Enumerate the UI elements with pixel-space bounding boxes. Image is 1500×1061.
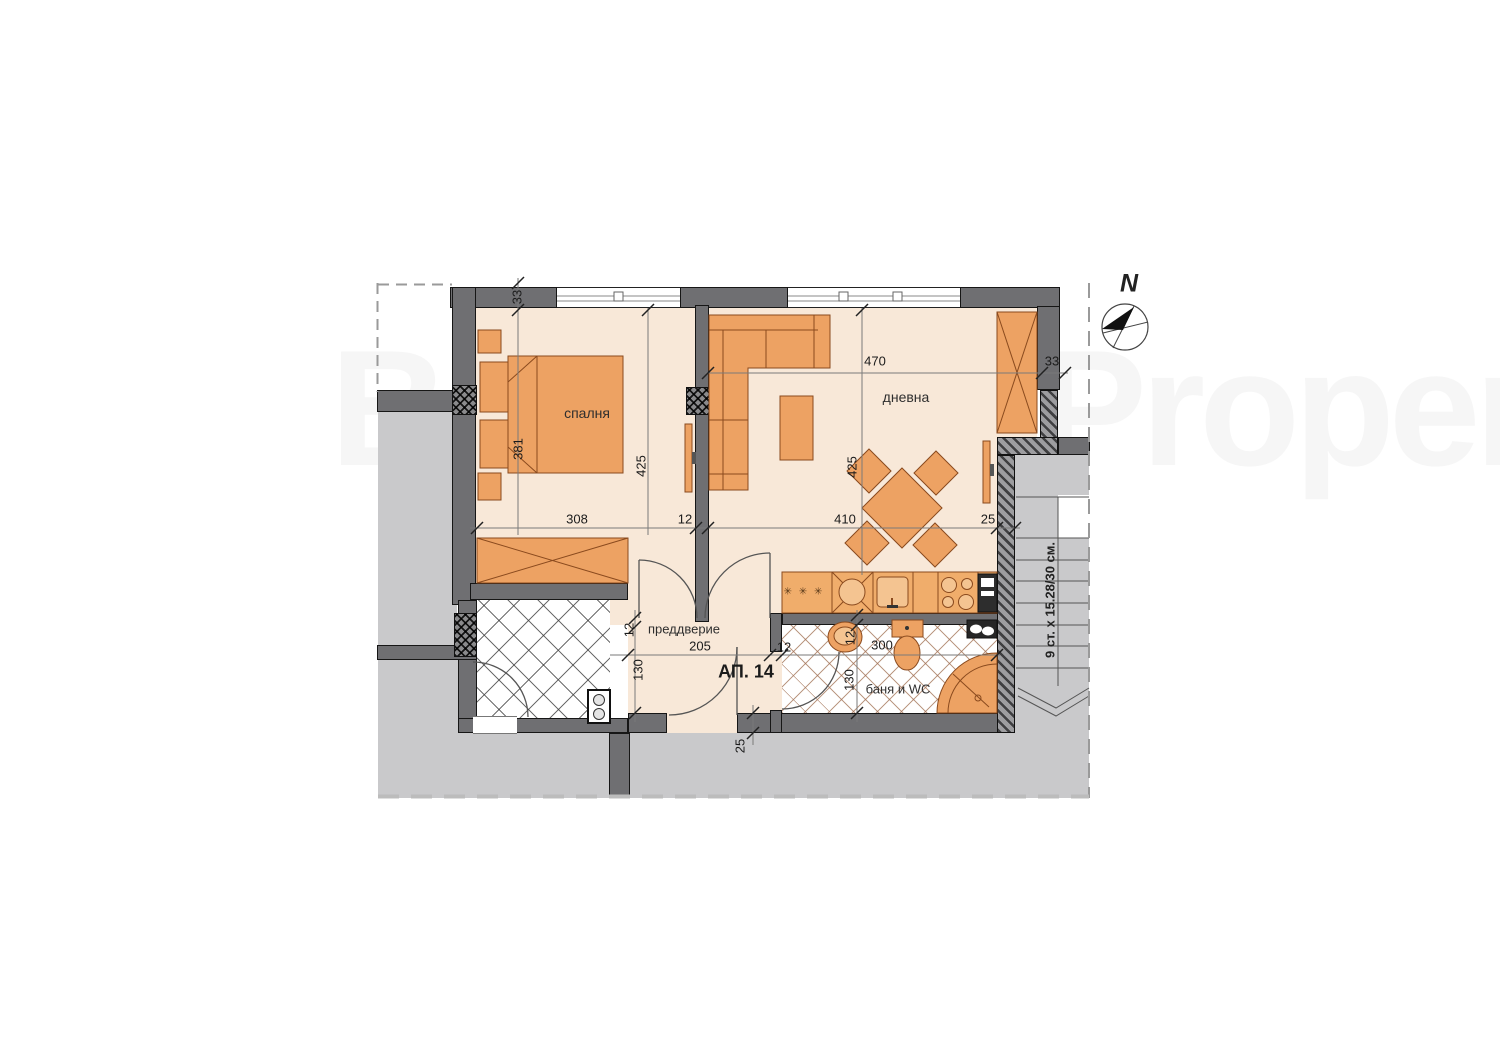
dim-living-top-width: 470 [864,354,886,369]
dim-bath-wall: 12 [843,631,858,645]
wall-partition [695,305,709,622]
room-label-hall: преддверие [648,622,720,637]
room-label-bedroom: спалня [564,405,610,421]
wall-hall-east-lower [770,710,782,733]
dim-bedroom-depth: 425 [634,455,649,477]
wall-top-pier-right [960,287,1060,308]
dim-top-left-wall: 33 [510,290,525,304]
wall-bottom-left [628,713,667,733]
dim-kitchen-wall: 25 [981,512,995,527]
floor-plan: BulgarianProperties [0,0,1500,1061]
hob-marks: ✳ ✳ ✳ [784,587,825,598]
apartment-number: АП. 14 [718,662,774,683]
wall-bedroom-south [470,583,628,600]
wall-corner-block-right [1058,437,1090,455]
dim-bath-depth: 130 [842,669,857,691]
courtyard-left-upper [378,412,457,645]
wall-hatched-east-lower [997,455,1015,733]
terrace-floor-tiles [477,600,610,718]
compass-needle [1102,307,1134,330]
dim-living-width: 410 [834,512,856,527]
room-label-bathroom: баня и WC [866,682,931,697]
column-marker-left-upper [452,385,477,415]
wall-fin-south [609,733,630,798]
dim-bath-door-wall: 12 [777,640,791,655]
dim-bath-width: 300 [871,638,893,653]
wall-left [452,287,476,605]
window-bedroom [557,287,680,308]
dim-bed-side: 381 [511,438,526,460]
dim-partition: 12 [678,512,692,527]
wall-right-upper [1037,306,1060,390]
wall-hatched-east-band [997,437,1058,455]
floor-upper [476,308,1037,437]
terrace-door-threshold [473,716,517,734]
wall-wing-upper [377,390,457,412]
window-living [788,287,960,308]
compass-rose [1102,304,1148,350]
stairs-label: 9 ст. x 15.28/30 см. [1043,542,1058,658]
dim-hall-wall: 12 [622,623,637,637]
dim-bedroom-width: 308 [566,512,588,527]
dim-top-right-wall: 33 [1045,354,1059,369]
ground-strip-bottom [458,733,1089,798]
dim-bottom-wall: 25 [733,739,748,753]
stair-landing-notch [1058,495,1089,538]
column-marker-partition [686,387,710,415]
courtyard-left-lower [378,660,458,798]
room-label-living: дневна [883,389,930,405]
compass-north-label: N [1120,270,1138,299]
dim-hall-depth: 130 [631,659,646,681]
dim-living-depth: 425 [845,456,860,478]
wall-kitchen-south [782,613,1002,625]
column-marker-left-lower [454,613,477,657]
dim-hall-width: 205 [689,639,711,654]
